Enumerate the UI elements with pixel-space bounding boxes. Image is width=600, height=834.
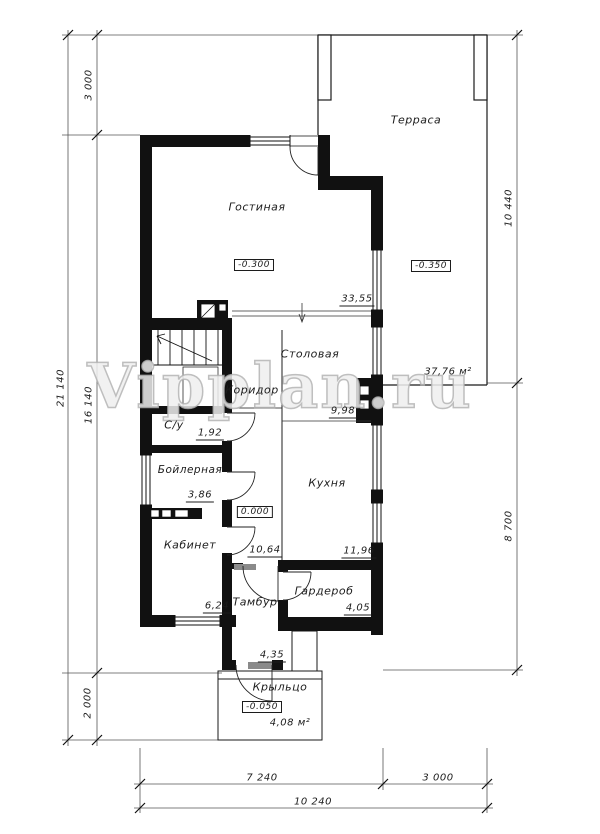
level-mark-porch: -0.050: [242, 701, 282, 713]
level-mark-living: -0.300: [234, 259, 274, 271]
dimension-lines: [62, 30, 523, 813]
room-label-dining: Столовая: [281, 348, 339, 361]
dim-left-top: 3 000: [84, 67, 95, 102]
dim-left-total: 21 140: [56, 367, 67, 409]
room-area-corridor: 10,64: [247, 545, 282, 558]
room-area-living: 33,55: [339, 294, 374, 307]
room-area-porch: 4,08 м²: [270, 718, 311, 729]
room-area-wc: 1,92: [196, 428, 224, 441]
room-area-boiler: 3,86: [186, 490, 214, 503]
room-area-office: 6,24: [203, 601, 231, 614]
room-label-wc: С/у: [164, 419, 183, 432]
room-label-wardrobe: Гардероб: [295, 585, 354, 598]
dim-bottom-left: 7 240: [244, 773, 279, 784]
dim-bottom-total: 10 240: [292, 797, 334, 808]
room-label-kitchen: Кухня: [308, 477, 345, 490]
room-label-boiler: Бойлерная: [158, 464, 222, 476]
room-label-living: Гостиная: [228, 201, 285, 214]
boiler-appliance-icons: [151, 510, 188, 517]
floor-step-lines: [232, 303, 371, 560]
room-area-wardrobe: 4,05: [344, 603, 372, 616]
dimension-ticks: [63, 30, 522, 813]
dim-right-bottom: 8 700: [504, 508, 515, 543]
dim-bottom-right: 3 000: [420, 773, 455, 784]
room-area-tambour: 4,35: [258, 650, 286, 663]
room-label-porch: Крыльцо: [253, 681, 308, 694]
terrace-outline: [318, 35, 487, 385]
room-label-corridor: Коридор: [225, 384, 279, 397]
room-label-tambour: Тамбур: [232, 596, 277, 609]
room-area-terrace: 37,76 м²: [424, 367, 471, 378]
room-label-office: Кабинет: [164, 539, 216, 552]
room-label-terrace: Терраса: [391, 114, 441, 127]
dim-left-bottom: 2 000: [83, 685, 94, 720]
room-area-kitchen: 11,96: [341, 546, 376, 559]
dim-left-middle: 16 140: [84, 384, 95, 426]
level-mark-terrace: -0.350: [411, 260, 451, 272]
room-area-dining: 9,98: [329, 406, 357, 419]
dim-right-top: 10 440: [504, 187, 515, 229]
floor-plan-sheet: Vipplan.ru Терраса -0.350 37,76 м² Гости…: [0, 0, 600, 834]
level-mark-entry: 0.000: [237, 506, 273, 518]
